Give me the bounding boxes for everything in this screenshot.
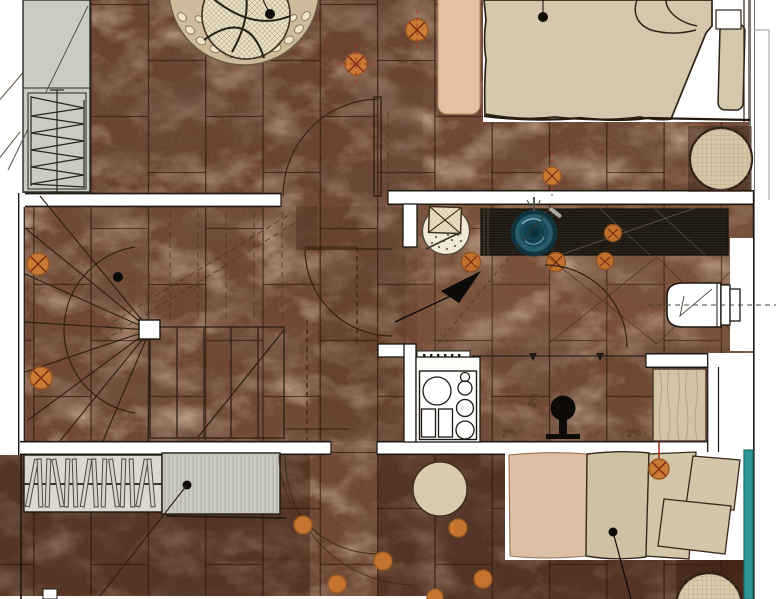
- svg-text:2%: 2%: [626, 427, 642, 440]
- svg-text:2%: 2%: [501, 427, 517, 440]
